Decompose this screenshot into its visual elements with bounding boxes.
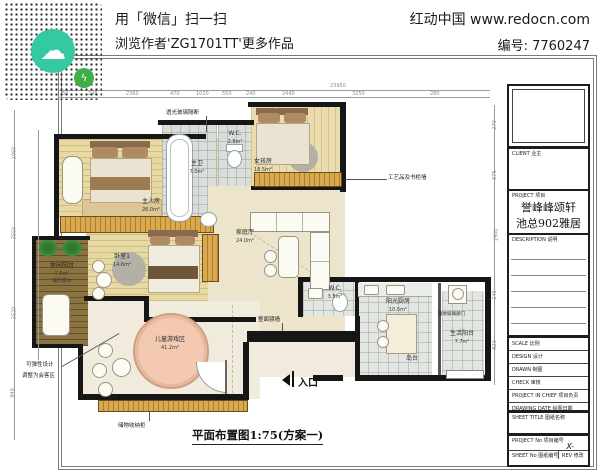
entry-door-leaf [225,360,227,394]
pillow [92,147,118,158]
washer-drum [452,288,464,300]
description-row [511,307,586,308]
wall [32,344,82,348]
drawn-row: DRAWN 制图 [509,364,588,377]
room-label-wc1: W.C.2.8m² [220,130,250,145]
description-row [511,259,586,260]
sheet-title-label: SHEET TITLE 图纸名称 [509,413,588,421]
mirror-wall [247,331,359,342]
label-island: 岛台 [398,355,426,363]
kitchen-sink [386,285,405,295]
pouf [264,264,277,277]
pillow [175,236,195,245]
dimension-line-right [494,105,495,385]
dimension-line-left [14,110,15,440]
storage-cabinet-band [98,400,248,412]
wall [32,236,36,348]
titleblock-number-box: PROJECT No 项目编号 X- SHEET No 图纸编号 REV 修改 [507,434,590,467]
entrance-arrow-icon [282,374,290,386]
wall [78,344,83,400]
rev-label: REV 修改 [559,451,584,459]
wall [54,134,59,238]
play-rug-circle [133,313,209,389]
scale-row: SCALE 比例 [509,338,588,351]
room-label-master: 主人房26.0m² [128,198,174,213]
balcony-window [446,370,484,379]
pouf [264,250,277,263]
site-brand-text: 红动中国 www.redocn.com [410,9,590,29]
room-label-service-balcony: 生活阳台7.7m² [444,330,480,345]
annotation-bookcase-wall: 工艺品及书柜墙 [388,173,427,181]
round-table [112,358,131,377]
stock-image-preview: { "header": { "line1": "用「微信」扫一扫", "line… [0,0,600,472]
wall [243,342,249,400]
wechat-icon: ϟ [74,68,94,88]
image-code-text: 编号: 7760247 [498,35,590,54]
titleblock-description-box: DESCRIPTION 说明 [507,233,590,337]
dimension-line-top [58,97,490,98]
chair [92,363,107,378]
deck-chair [42,294,70,336]
project-no-label: PROJECT No 项目编号 [509,436,588,451]
design-row: DESIGN 设计 [509,351,588,364]
room-label-master-bath: 主卫7.0m² [182,160,212,175]
toilet [227,150,242,168]
wechat-scan-text: 用「微信」扫一扫 [115,9,227,29]
wall [355,316,360,376]
wall-cabinet [310,232,330,290]
wall [32,236,90,240]
leader-line [282,323,283,331]
description-row [511,323,586,324]
pillow [258,113,280,123]
annotation-flex-design-line1: 可弹性设计 [26,360,54,368]
check-row: CHECK 审核 [509,377,588,390]
chair [98,382,113,397]
leader-line [149,411,150,421]
project-name-line1: 誉峰峰颂轩 [509,199,588,215]
annotation-mirror-wall: 整面镜墙 [258,315,280,323]
description-row [511,291,586,292]
entrance-label: 入口 [298,374,318,389]
room-label-bedroom1: 卧室114.6m² [104,253,140,268]
room-label-girls: 女孩房18.5m² [243,158,283,173]
titleblock-sheet-title-box: SHEET TITLE 图纸名称 [507,411,590,435]
chair [98,343,113,358]
author-more-works-text: 浏览作者'ZG1701TT'更多作品 [115,33,294,52]
annotation-flex-design-line2: 调整为会客区 [22,371,55,379]
project-label: PROJECT 项目 [509,191,588,199]
titleblock-client-box: CLIENT 业主 [507,147,590,191]
pillow [122,147,148,158]
titleblock-info-box: SCALE 比例 DESIGN 设计 DRAWN 制图 CHECK 审核 PRO… [507,336,590,412]
description-label: DESCRIPTION 说明 [509,235,588,243]
dimension-total: 23950 [330,83,346,89]
annotation-storage-cabinet: 储物收纳柜 [118,421,146,429]
pillow [150,236,170,245]
girls-wardrobe [254,172,342,187]
sofa [278,236,299,278]
annotation-glass-partition: 透光玻璃隔断 [166,108,199,116]
small-table [96,272,112,288]
room-label-play: 儿童游戏区41.2m² [143,336,197,351]
balcony-divider [438,283,441,375]
entrance-marker-bar [292,371,294,387]
plant [38,240,58,256]
project-name-line2: 池总902雅居 [509,215,588,231]
bed-runner [90,177,150,190]
plant [62,240,82,256]
room-label-wc2: W.C.3.5m² [320,285,350,300]
cooktop [364,285,379,295]
bedroom1-wardrobe [202,234,219,282]
wall [298,277,303,317]
kitchen-island [386,314,417,354]
titleblock-logo-box [507,84,590,148]
chief-row: PROJECT IN CHIEF 项目负责 [509,390,588,403]
titleblock-project-box: PROJECT 项目 誉峰峰颂轩 池总902雅居 [507,189,590,235]
bed-runner [148,266,198,279]
room-label-kitchen: 阳光厨房10.5m² [376,298,420,313]
sheet-no-label: SHEET No 图纸编号 [509,451,559,459]
plan-title: 平面布置图1:75(方案一) [192,427,323,445]
leader-line [345,179,387,180]
toilet [200,212,217,227]
room-label-family: 家庭厅24.0m² [226,229,264,244]
wechat-qr-code: ☁ ϟ [4,2,102,100]
chaise-lounge [62,156,83,204]
leader-line [206,116,207,132]
wall [248,102,346,107]
pillow [284,113,306,123]
chair [92,287,105,300]
client-label: CLIENT 业主 [509,149,588,157]
description-row [511,275,586,276]
stool [377,336,389,348]
room-label-leisure-balcony: 休闲阳台 7.5m² 铺防腐木 [38,262,86,285]
stool [377,320,389,332]
dimension-line-left2 [38,130,39,360]
dimension-line-total [58,90,490,91]
wall [485,277,491,381]
annotation-glass-sliding-door: 落地玻璃趟门 [438,311,465,317]
logo-inner-border [512,89,585,143]
project-no-value: X- [566,442,574,451]
cloud-icon: ☁ [31,29,75,73]
